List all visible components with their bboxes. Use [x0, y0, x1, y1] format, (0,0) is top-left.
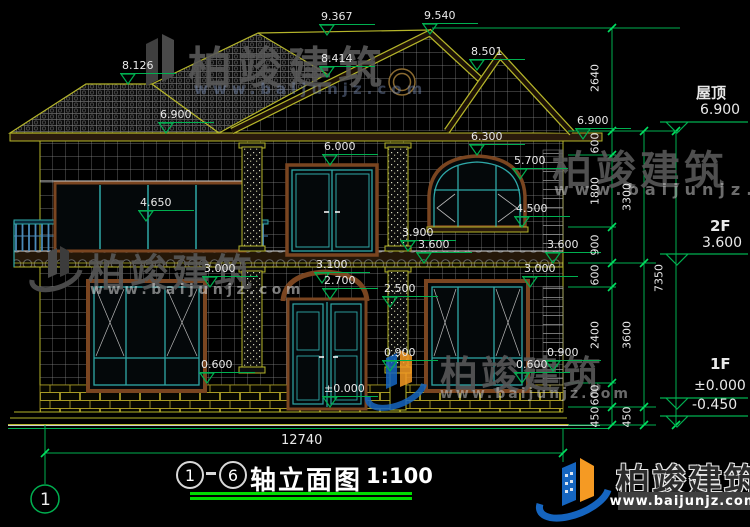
elevation-value: 6.000: [324, 140, 356, 153]
elevation-value: 2.500: [384, 282, 416, 295]
dimension-text: 2400: [589, 321, 602, 349]
title-underline-2: [190, 497, 412, 500]
elevation-marker: 8.126: [118, 58, 178, 86]
cad-elevation-screenshot: 屋顶 6.900 2F 3.600 1F ±0.000 -0.450 12740…: [0, 0, 750, 527]
title-axis-start-bubble: 1: [176, 461, 204, 489]
ground-elevation: -0.450: [692, 398, 737, 412]
elevation-marker: 3.000: [200, 261, 260, 289]
dimension-text: 600: [589, 385, 602, 406]
elevation-value: 8.414: [321, 52, 353, 65]
elevation-marker: 0.600: [197, 357, 257, 385]
floor1-label: 1F: [710, 357, 731, 372]
elevation-value: 3.600: [547, 238, 579, 251]
elevation-marker: 9.540: [420, 8, 480, 36]
floor2-elevation: 3.600: [702, 236, 742, 250]
elevation-marker: 3.000: [520, 261, 580, 289]
elevation-value: 3.000: [524, 262, 556, 275]
elevation-value: 3.100: [316, 258, 348, 271]
dimension-text: 450: [589, 407, 602, 428]
elevation-marker: 6.000: [320, 139, 380, 167]
window-1f-left: [88, 281, 205, 391]
dimension-text: 3300: [621, 183, 634, 211]
dimension-text: 450: [621, 407, 634, 428]
elevation-value: 5.700: [514, 154, 546, 167]
dimension-text: 600: [589, 265, 602, 286]
dimension-text: 600: [589, 133, 602, 154]
roof-elevation: 6.900: [700, 103, 740, 117]
roof-label: 屋顶: [696, 86, 726, 101]
elevation-marker: 6.900: [156, 107, 216, 135]
elevation-marker: 6.900: [573, 113, 633, 141]
title-dash: [206, 472, 216, 475]
elevation-value: ±0.000: [324, 382, 365, 395]
elevation-value: 6.300: [471, 130, 503, 143]
elevation-value: 0.900: [384, 346, 416, 359]
elevation-value: 6.900: [160, 108, 192, 121]
floor1-elevation: ±0.000: [694, 379, 746, 393]
door-2f-balcony: [287, 165, 377, 255]
elevation-marker: 5.700: [510, 153, 570, 181]
elevation-value: 9.367: [321, 10, 353, 23]
elevation-value: 6.900: [577, 114, 609, 127]
axis-bubble-number: 1: [40, 490, 51, 510]
elevation-marker: 3.600: [414, 237, 474, 265]
elevation-value: 4.500: [516, 202, 548, 215]
elevation-marker: 4.500: [512, 201, 572, 229]
elevation-value: 8.501: [471, 45, 503, 58]
elevation-marker: ±0.000: [320, 381, 380, 409]
elevation-marker: 4.650: [136, 195, 196, 223]
elevation-value: 0.600: [516, 358, 548, 371]
title-axis-end-bubble: 6: [219, 461, 247, 489]
elevation-marker: 9.367: [317, 9, 377, 37]
title-axis-start: 1: [185, 466, 195, 485]
elevation-value: 3.000: [204, 262, 236, 275]
title-axis-end: 6: [228, 466, 238, 485]
overall-width-dimension: 12740: [281, 434, 322, 447]
elevation-marker: 8.414: [317, 51, 377, 79]
elevation-value: 3.600: [418, 238, 450, 251]
dimension-text: 900: [589, 235, 602, 256]
elevation-value: 0.600: [201, 358, 233, 371]
dimension-text: 7350: [653, 264, 666, 292]
dimension-text: 1800: [589, 177, 602, 205]
elevation-marker: 2.500: [380, 281, 440, 309]
elevation-marker: 0.600: [512, 357, 572, 385]
floor2-label: 2F: [710, 219, 731, 234]
elevation-marker: 0.900: [380, 345, 440, 373]
ground-lines: [8, 412, 608, 429]
title-underline-1: [190, 492, 412, 495]
elevation-value: 4.650: [140, 196, 172, 209]
drawing-scale: 1:100: [366, 464, 433, 488]
elevation-drawing: [0, 0, 750, 527]
elevation-value: 9.540: [424, 9, 456, 22]
elevation-marker: 8.501: [467, 44, 527, 72]
elevation-marker: 2.700: [320, 273, 380, 301]
elevation-value: 8.126: [122, 59, 154, 72]
dimension-text: 3600: [621, 321, 634, 349]
elevation-value: 2.700: [324, 274, 356, 287]
dimension-text: 2640: [589, 64, 602, 92]
